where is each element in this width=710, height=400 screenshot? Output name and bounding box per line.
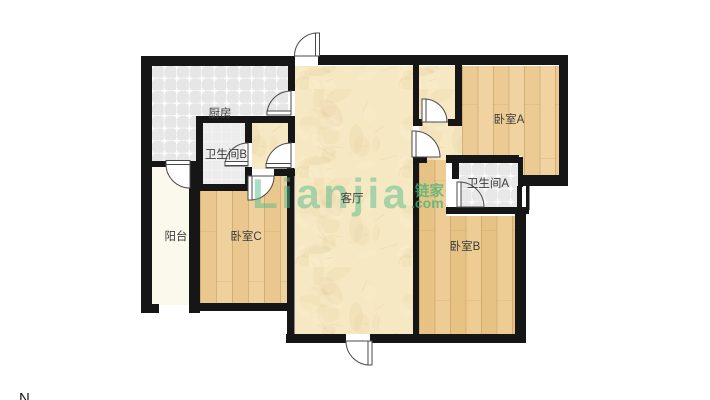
svg-text:卫生间A: 卫生间A xyxy=(467,176,509,190)
svg-text:N: N xyxy=(19,390,30,400)
svg-text:阳台: 阳台 xyxy=(165,229,188,243)
svg-text:客厅: 客厅 xyxy=(341,191,364,205)
svg-text:卫生间B: 卫生间B xyxy=(205,147,247,161)
svg-text:卧室B: 卧室B xyxy=(450,239,481,253)
svg-text:厨房: 厨房 xyxy=(209,107,232,120)
svg-text:Lianjia: Lianjia xyxy=(252,170,410,217)
svg-text:.com: .com xyxy=(411,195,444,211)
svg-text:卧室C: 卧室C xyxy=(230,229,261,243)
svg-text:卧室A: 卧室A xyxy=(494,112,525,126)
